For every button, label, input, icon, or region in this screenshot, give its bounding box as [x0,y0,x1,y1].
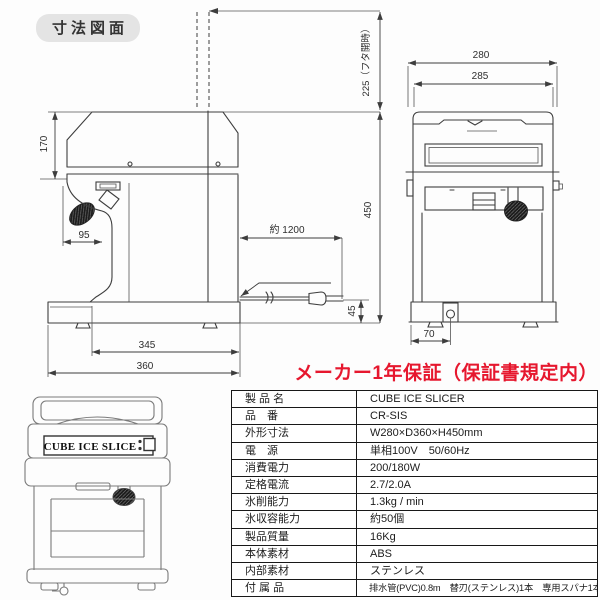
spec-value: ステンレス [357,563,597,579]
spec-table: 製 品 名 CUBE ICE SLICER 品 番 CR-SIS 外形寸法 W2… [231,390,598,597]
spec-value: 排水管(PVC)0.8m 替刃(ステンレス)1本 専用スパナ1本 [357,580,597,596]
spec-label: 品 番 [232,408,356,424]
spec-label: 氷収容能力 [232,511,356,527]
spec-value: 2.7/2.0A [357,477,597,493]
dim-label-cord-height: 45 [347,305,358,317]
dim-label-width: 280 [473,50,490,61]
spec-sheet: 225（フタ開時） 170 95 450 約 1200 45 345 360 [0,0,600,600]
dim-label-cord-length: 約 1200 [269,223,304,236]
spec-label: 付 属 品 [232,580,356,596]
spec-label: 定格電流 [232,477,356,493]
spec-value: CUBE ICE SLICER [357,391,597,407]
product-illustration: CUBE ICE SLICE [25,397,170,595]
front-view-drawing: 280 285 [406,50,563,345]
product-name-plate: CUBE ICE SLICE [44,441,137,453]
dim-label-height: 450 [363,201,374,218]
dim-label-drain: 70 [423,329,435,340]
spec-label: 内部素材 [232,563,356,579]
spec-value: ABS [357,546,597,562]
spec-value: W280×D360×H450mm [357,425,597,441]
dim-label-hood-height: 170 [39,135,50,152]
dim-label-handle: 95 [78,230,90,241]
spec-label: 製 品 名 [232,391,356,407]
spec-label: 外形寸法 [232,425,356,441]
spec-value: 16Kg [357,529,597,545]
spec-value: CR-SIS [357,408,597,424]
dim-label-lid-open: 225（フタ開時） [360,24,372,97]
dim-label-depth: 360 [137,361,154,372]
spec-label: 電 源 [232,443,356,459]
spec-value: 1.3kg / min [357,494,597,510]
spec-label: 氷削能力 [232,494,356,510]
spec-label: 本体素材 [232,546,356,562]
warranty-banner: メーカー1年保証（保証書規定内） [294,358,598,385]
spec-value: 単相100V 50/60Hz [357,443,597,459]
dim-label-inner-depth: 345 [139,340,156,351]
spec-value: 200/180W [357,460,597,476]
page-title: 寸法図面 [36,14,140,42]
spec-label: 製品質量 [232,529,356,545]
dim-label-lid-width: 285 [472,71,489,82]
side-view-drawing: 225（フタ開時） 170 95 450 約 1200 45 345 360 [39,8,380,377]
spec-value: 約50個 [357,511,597,527]
spec-label: 消費電力 [232,460,356,476]
